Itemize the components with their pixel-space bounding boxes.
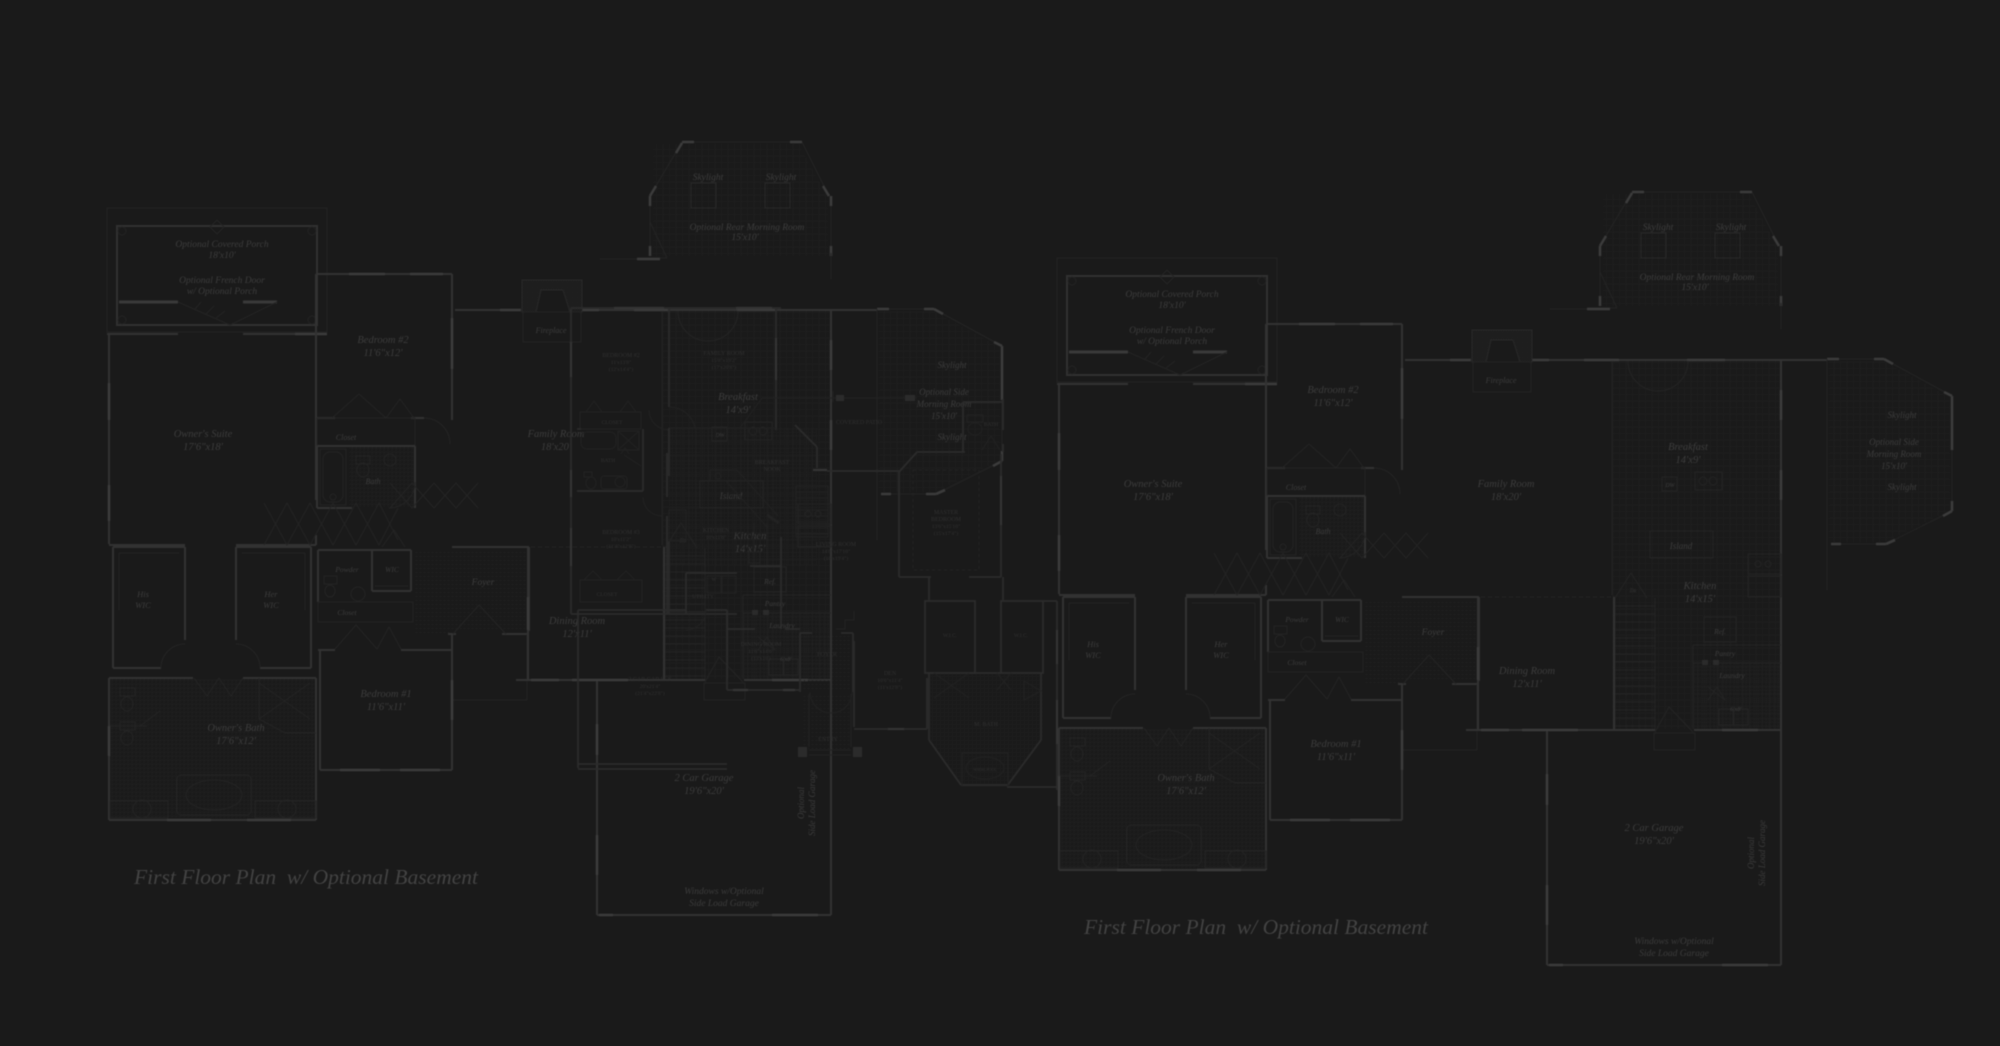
svg-text:20'x21'4": 20'x21'4" <box>640 684 661 690</box>
svg-text:13'6"x15'10": 13'6"x15'10" <box>932 524 960 530</box>
svg-text:(11'x12'8"): (11'x12'8") <box>878 684 902 691</box>
svg-text:KITCHEN: KITCHEN <box>703 528 730 534</box>
svg-text:11'x13'8": 11'x13'8" <box>611 360 632 366</box>
svg-text:LIVING ROOM: LIVING ROOM <box>816 542 857 548</box>
svg-text:(17'x20'8"): (17'x20'8") <box>712 364 737 371</box>
svg-text:(21'4"x22'8"): (21'4"x22'8") <box>635 690 665 697</box>
svg-text:(16'x19'4"): (16'x19'4") <box>824 555 849 562</box>
svg-text:DEN: DEN <box>884 671 897 677</box>
svg-text:M. BATH: M. BATH <box>974 722 999 728</box>
svg-text:2 CAR GARAGE: 2 CAR GARAGE <box>628 677 672 683</box>
svg-text:15'8"x19'2": 15'8"x19'2" <box>711 358 737 364</box>
svg-text:DINING ROOM: DINING ROOM <box>741 642 782 648</box>
svg-text:W: W <box>712 578 717 583</box>
svg-text:(11'4"x12'8"): (11'4"x12'8") <box>606 543 635 550</box>
svg-text:10'6"x11'4": 10'6"x11'4" <box>877 678 903 684</box>
svg-text:BREAKFAST: BREAKFAST <box>755 460 790 466</box>
svg-text:FAMILY ROOM: FAMILY ROOM <box>703 351 745 357</box>
svg-text:BEDROOM: BEDROOM <box>931 517 962 523</box>
svg-text:W.I.C.: W.I.C. <box>943 633 958 639</box>
svg-text:CLOSET: CLOSET <box>597 592 618 598</box>
svg-text:UTILITY: UTILITY <box>692 594 714 600</box>
svg-text:CLOSET: CLOSET <box>602 420 623 426</box>
svg-text:10'x11'2": 10'x11'2" <box>611 537 632 543</box>
svg-text:BEDROOM #2: BEDROOM #2 <box>602 353 640 359</box>
svg-text:COVERED PATIO: COVERED PATIO <box>836 420 883 426</box>
svg-text:WHIRLPOOL: WHIRLPOOL <box>973 767 997 772</box>
svg-text:FOYER: FOYER <box>817 652 837 658</box>
svg-text:ENTRY: ENTRY <box>818 737 838 743</box>
svg-text:W.I.C.: W.I.C. <box>1014 633 1029 639</box>
svg-text:(13'x16'): (13'x16') <box>751 655 771 662</box>
svg-text:BATH: BATH <box>984 422 998 428</box>
svg-text:(12'x14'4"): (12'x14'4") <box>609 366 634 373</box>
svg-text:(15'x17'4"): (15'x17'4") <box>934 530 959 537</box>
svg-text:MASTER: MASTER <box>934 510 958 516</box>
svg-text:NOOK: NOOK <box>763 467 781 473</box>
svg-text:BEDROOM #3: BEDROOM #3 <box>602 530 640 536</box>
svg-text:11'6"x14'6": 11'6"x14'6" <box>748 649 774 655</box>
svg-text:14'6"x17'10": 14'6"x17'10" <box>822 549 850 555</box>
svg-text:BATH: BATH <box>601 458 615 464</box>
svg-text:10'x11'6": 10'x11'6" <box>706 535 727 541</box>
